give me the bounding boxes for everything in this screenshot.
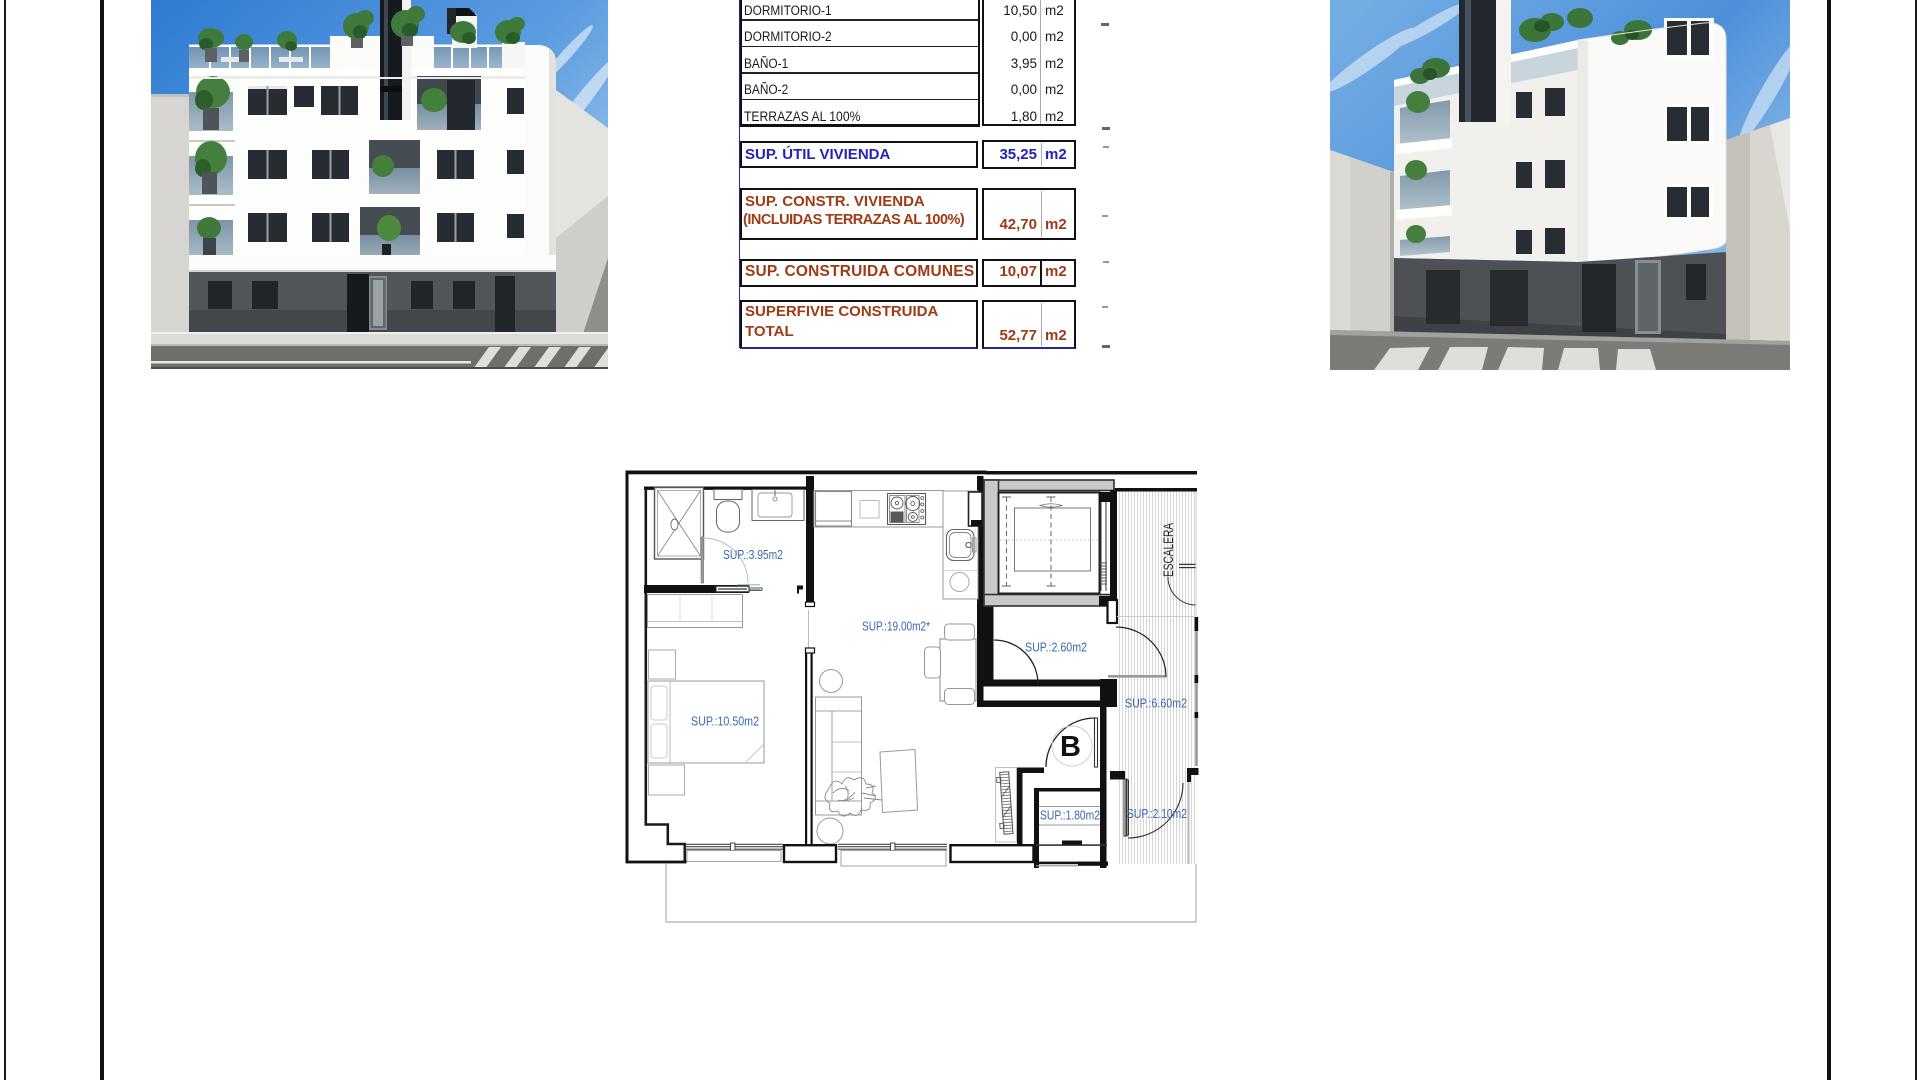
svg-text:SUP.:1.80m2: SUP.:1.80m2 xyxy=(1040,809,1100,823)
svg-text:SUP.:2.60m2: SUP.:2.60m2 xyxy=(1025,641,1087,655)
svg-text:SUP.:6.60m2: SUP.:6.60m2 xyxy=(1125,697,1187,711)
svg-text:SUP.:10.50m2: SUP.:10.50m2 xyxy=(691,715,759,729)
svg-text:ESCALERA: ESCALERA xyxy=(1161,523,1176,577)
svg-text:B: B xyxy=(1060,731,1081,763)
svg-text:SUP.:3.95m2: SUP.:3.95m2 xyxy=(723,548,783,562)
svg-text:SUP.:2.10m2: SUP.:2.10m2 xyxy=(1127,807,1187,821)
svg-text:SUP.:19.00m2*: SUP.:19.00m2* xyxy=(862,620,930,634)
